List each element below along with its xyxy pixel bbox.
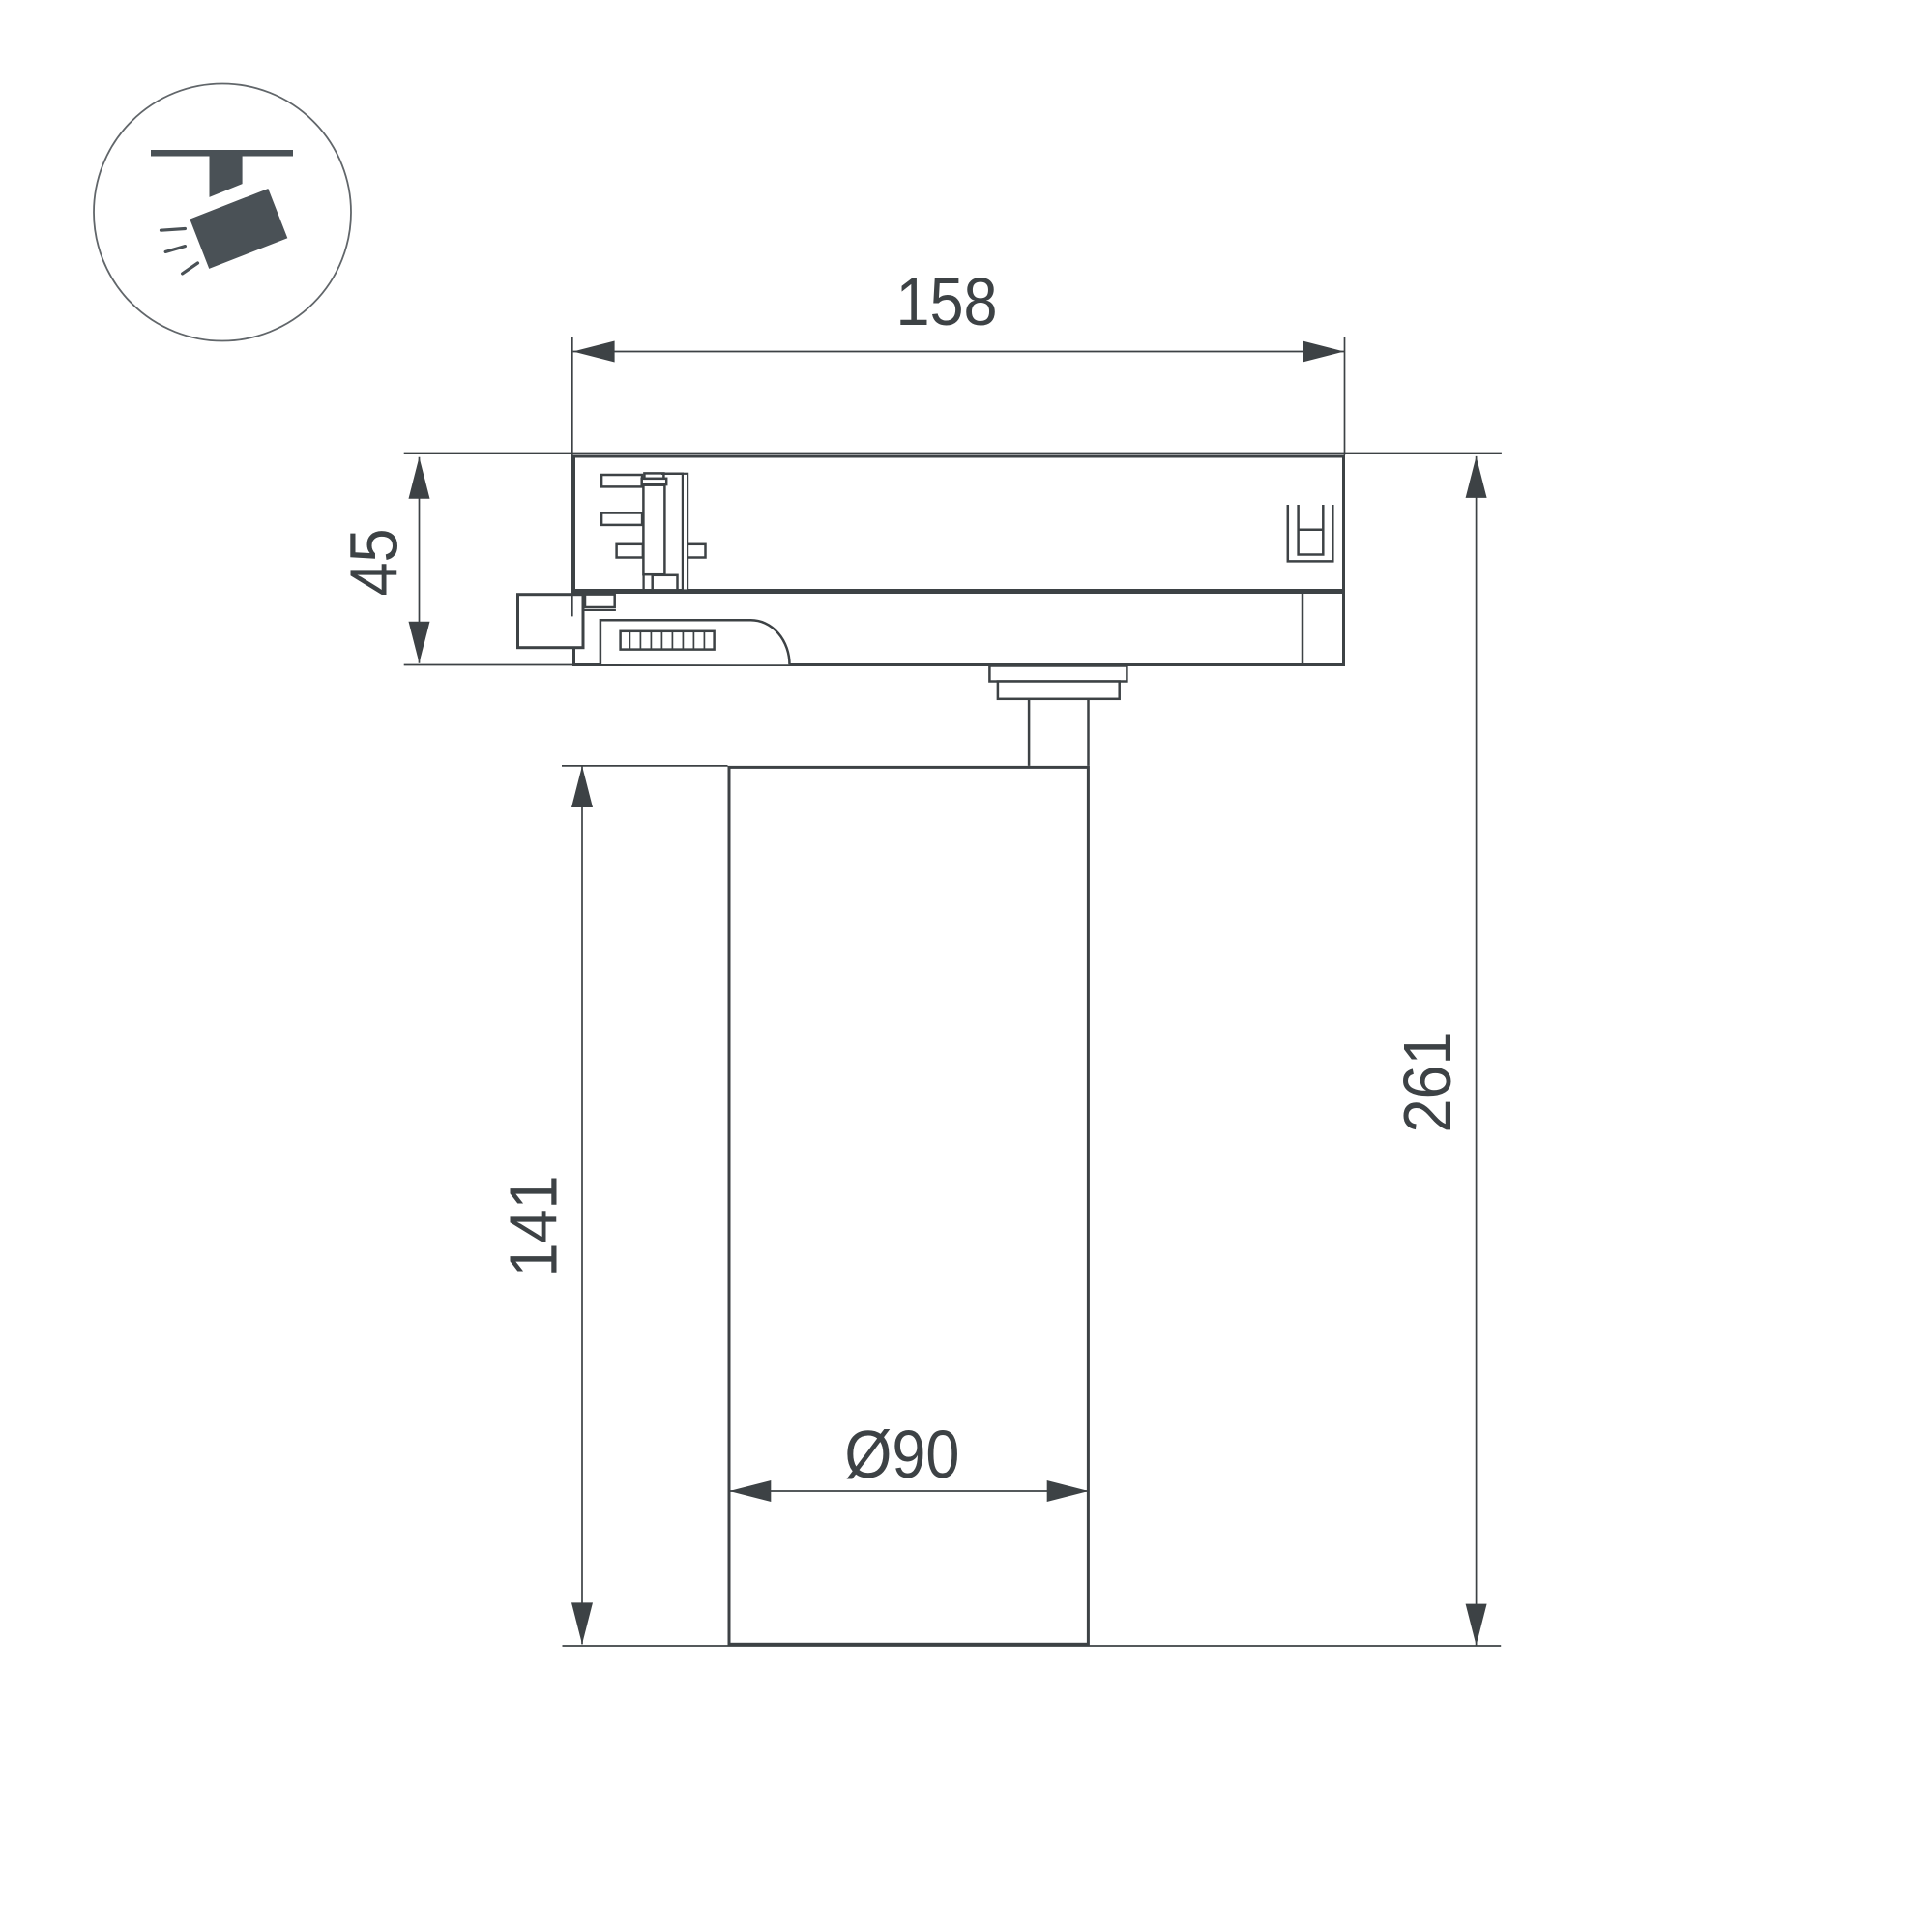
svg-text:141: 141: [497, 1175, 572, 1276]
svg-text:158: 158: [895, 265, 997, 340]
svg-text:261: 261: [1390, 1031, 1466, 1132]
svg-text:45: 45: [337, 528, 412, 596]
svg-text:Ø90: Ø90: [844, 1418, 959, 1493]
